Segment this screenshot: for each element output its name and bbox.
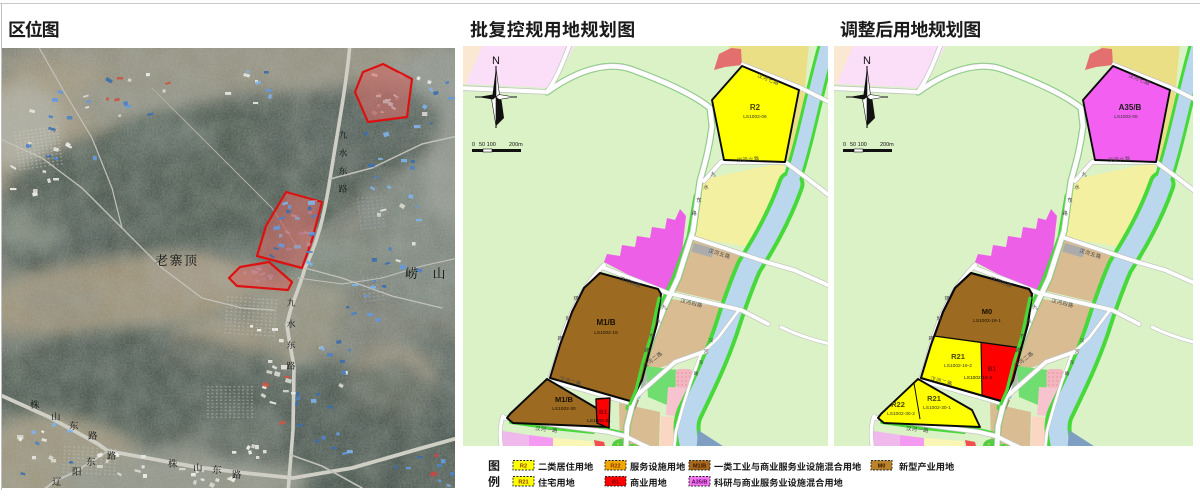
svg-text:R22: R22 [610, 464, 620, 470]
svg-text:R2: R2 [750, 103, 761, 112]
svg-text:LS1002-19-3: LS1002-19-3 [964, 375, 992, 381]
svg-text:R21: R21 [927, 394, 941, 403]
svg-text:M1/B: M1/B [693, 464, 706, 470]
svg-text:A35/B: A35/B [692, 480, 708, 486]
svg-text:M1/B: M1/B [555, 395, 574, 404]
svg-text:R21: R21 [518, 480, 528, 486]
svg-text:LS1002-19-1: LS1002-19-1 [973, 318, 1001, 324]
svg-text:R2: R2 [520, 464, 527, 470]
svg-text:LS1002-30: LS1002-30 [552, 406, 576, 412]
svg-text:M1/B: M1/B [596, 318, 615, 327]
svg-text:A35/B: A35/B [1119, 103, 1142, 112]
svg-text:0: 0 [843, 142, 846, 148]
svg-text:LS1002-30-2: LS1002-30-2 [887, 411, 915, 417]
svg-text:0: 0 [472, 142, 475, 148]
svg-text:LS1002-31: LS1002-31 [587, 418, 611, 424]
svg-text:50 100: 50 100 [479, 142, 496, 148]
svg-text:200m: 200m [509, 142, 523, 148]
svg-text:N: N [863, 55, 871, 67]
svg-text:LS1002-06: LS1002-06 [1114, 114, 1138, 120]
svg-text:N: N [492, 55, 500, 67]
svg-text:LS1002-30-1: LS1002-30-1 [923, 405, 951, 411]
svg-text:LS1002-06: LS1002-06 [743, 114, 767, 120]
svg-text:200m: 200m [880, 142, 894, 148]
svg-text:M0: M0 [878, 464, 886, 470]
svg-text:LS1002-19: LS1002-19 [594, 330, 618, 336]
svg-text:50 100: 50 100 [850, 142, 867, 148]
svg-text:LS1002-19-2: LS1002-19-2 [944, 363, 972, 369]
svg-text:R21: R21 [951, 352, 965, 361]
svg-text:M0: M0 [982, 307, 992, 316]
svg-text:R22: R22 [891, 400, 905, 409]
svg-text:B1: B1 [612, 480, 619, 486]
svg-text:B1: B1 [988, 366, 997, 373]
svg-text:B1: B1 [599, 409, 608, 416]
